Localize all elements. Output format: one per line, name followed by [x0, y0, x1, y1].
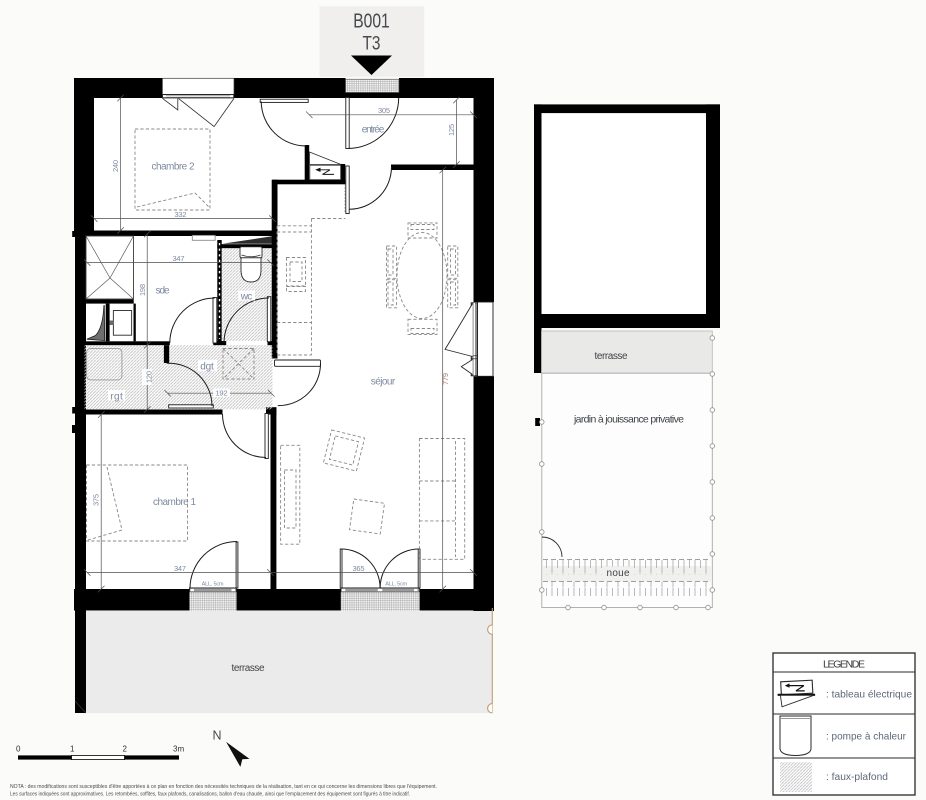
svg-text:0: 0 [16, 745, 21, 754]
svg-text:: tableau électrique: : tableau électrique [826, 689, 912, 701]
svg-text:192: 192 [216, 389, 228, 398]
svg-text:365: 365 [353, 564, 365, 573]
svg-text:T3: T3 [363, 33, 381, 55]
svg-text:B001: B001 [353, 10, 390, 33]
svg-text:2: 2 [123, 745, 128, 754]
svg-text:Les surfaces indiquées sont ap: Les surfaces indiquées sont approximativ… [10, 792, 410, 798]
svg-text:noue: noue [607, 568, 630, 579]
svg-text:wc: wc [240, 292, 253, 303]
svg-text:305: 305 [378, 106, 390, 115]
svg-text:entrée: entrée [362, 124, 385, 135]
svg-text:chambre 2: chambre 2 [152, 162, 195, 173]
svg-text:198: 198 [138, 284, 147, 296]
svg-text:chambre 1: chambre 1 [153, 497, 196, 508]
svg-text:125: 125 [447, 124, 456, 136]
svg-text:347: 347 [173, 254, 185, 263]
svg-text:séjour: séjour [371, 377, 396, 388]
svg-text:LEGENDE: LEGENDE [823, 659, 865, 671]
svg-text:120: 120 [145, 371, 154, 383]
svg-text:terrasse: terrasse [595, 351, 628, 362]
svg-text:: pompe à chaleur: : pompe à chaleur [826, 731, 906, 743]
svg-text:3m: 3m [173, 745, 184, 754]
svg-text:240: 240 [111, 160, 120, 172]
svg-text:N: N [213, 729, 222, 743]
svg-text:ALL. 5cm: ALL. 5cm [385, 582, 407, 588]
svg-text:jardin à jouissance privative: jardin à jouissance privative [573, 414, 684, 426]
svg-text:ALL. 5cm: ALL. 5cm [202, 581, 224, 587]
svg-text:rgt: rgt [110, 392, 123, 403]
svg-text:779: 779 [441, 373, 450, 385]
svg-text:332: 332 [175, 210, 187, 219]
svg-text:dgt: dgt [200, 362, 214, 373]
svg-text:: faux-plafond: : faux-plafond [826, 771, 888, 783]
svg-text:375: 375 [92, 494, 101, 506]
svg-text:terrasse: terrasse [232, 663, 265, 674]
svg-text:sde: sde [156, 286, 170, 297]
svg-text:1: 1 [70, 745, 75, 754]
svg-text:NOTA : des modifications sont: NOTA : des modifications sont susceptibl… [10, 784, 437, 790]
svg-text:347: 347 [174, 564, 186, 573]
